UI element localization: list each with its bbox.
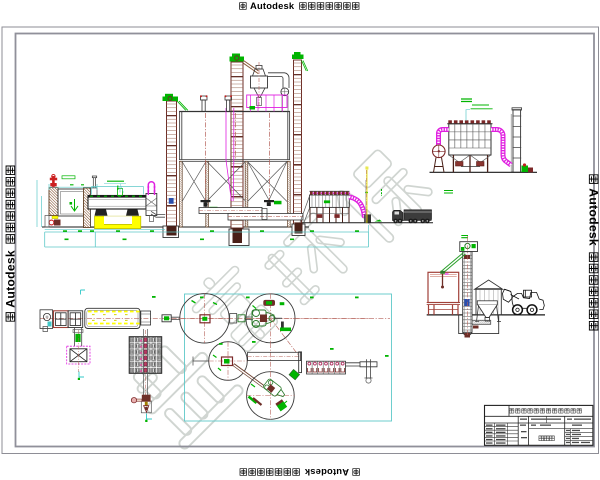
svg-text:Autodesk: Autodesk bbox=[250, 0, 295, 11]
svg-text:Autodesk: Autodesk bbox=[587, 188, 600, 246]
svg-text:Autodesk: Autodesk bbox=[304, 467, 349, 478]
svg-text:Autodesk: Autodesk bbox=[3, 250, 17, 308]
